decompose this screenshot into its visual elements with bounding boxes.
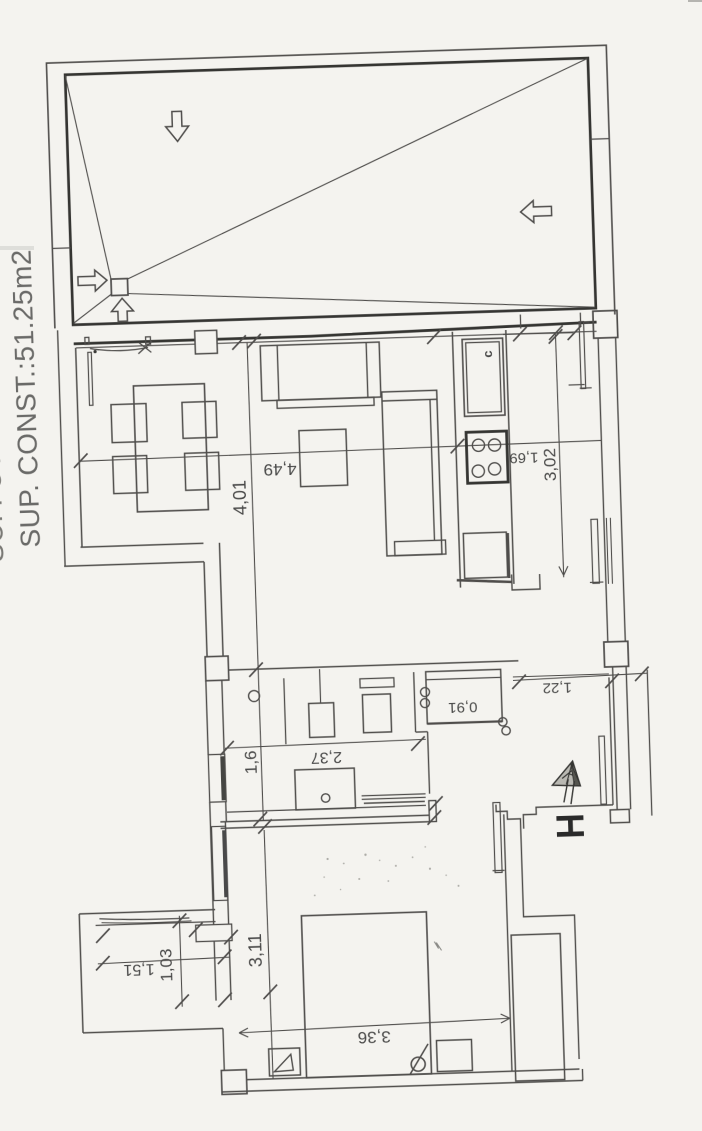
- svg-text:3,11: 3,11: [245, 933, 266, 967]
- svg-text:1,6: 1,6: [241, 750, 261, 774]
- svg-text:2,37: 2,37: [310, 748, 342, 766]
- svg-text:c: c: [480, 350, 495, 358]
- svg-text:4,49: 4,49: [263, 459, 297, 479]
- svg-text:1,22: 1,22: [542, 678, 572, 696]
- svg-text:1,69: 1,69: [509, 448, 539, 466]
- svg-text:1,51: 1,51: [123, 960, 155, 978]
- svg-text:1,03: 1,03: [156, 948, 176, 982]
- svg-text:3,02: 3,02: [540, 448, 560, 482]
- svg-text:3,36: 3,36: [357, 1027, 391, 1047]
- svg-text:4,01: 4,01: [230, 480, 251, 516]
- svg-text:0,91: 0,91: [448, 698, 478, 716]
